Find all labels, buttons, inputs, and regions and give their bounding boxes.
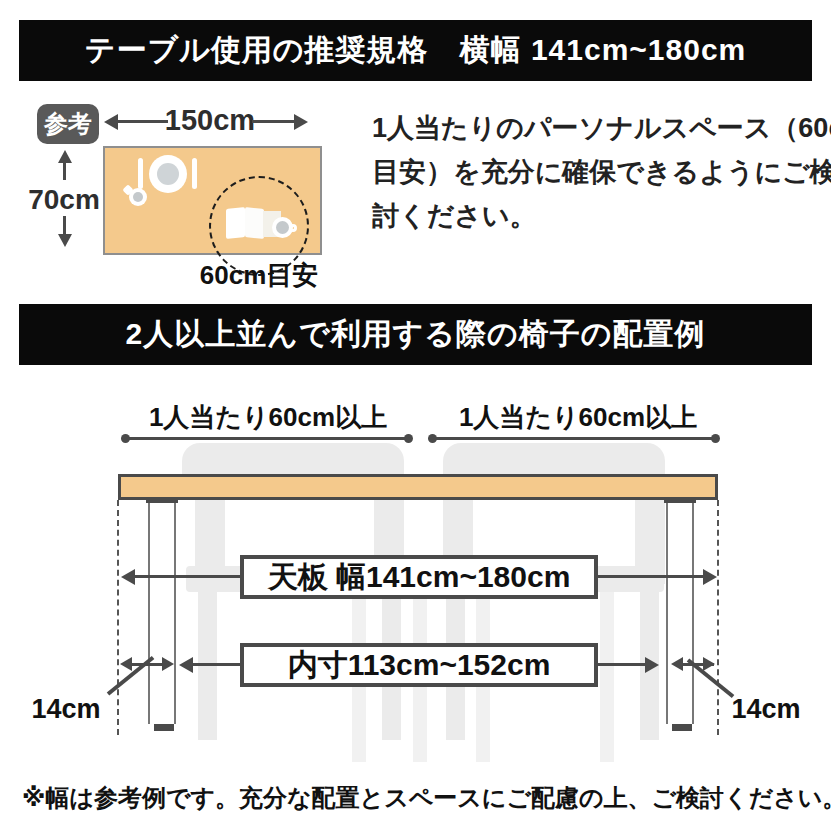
arrowhead-right-icon (645, 657, 659, 673)
arrowhead-left-icon (121, 569, 135, 585)
per-person-label-left: 1人当たり60cm以上 (120, 400, 416, 435)
edge-dashed-line-left (117, 500, 119, 735)
arrowhead-left-icon (179, 657, 193, 673)
tabletop-width-box: 天板 幅141cm~180cm (240, 555, 598, 599)
table-leg-foot (672, 724, 692, 731)
dimension-dot (428, 434, 437, 443)
dimension-line (598, 575, 704, 578)
arrowhead-down-icon (58, 234, 72, 247)
edge-dashed-line-right (717, 500, 719, 735)
note-line-1: 1人当たりのパーソナルスペース（60cm (372, 106, 822, 150)
teacup-inner (276, 221, 289, 234)
chair-leg (198, 592, 217, 740)
reference-badge-text: 参考 (44, 108, 92, 140)
banner-chair-layout-text: 2人以上並んで利用する際の椅子の配置例 (126, 314, 706, 355)
plate-inner (157, 163, 179, 185)
table-leg-cap (664, 497, 696, 503)
note-line-3: 討ください。 (372, 194, 822, 238)
tabletop-width-text: 天板 幅141cm~180cm (268, 557, 571, 598)
dimension-line (134, 575, 240, 578)
tabletop-front-view (118, 474, 718, 500)
note-line-2: 目安）を充分に確保できるようにご検 (372, 150, 822, 194)
table-depth-label: 70cm (24, 184, 104, 216)
table-width-label: 150cm (160, 104, 260, 137)
book-icon (226, 207, 245, 239)
footnote-text: ※幅は参考例です。充分な配置とスペースにご配慮の上、ご検討ください。 (22, 782, 817, 814)
banner-recommended-spec: テーブル使用の推奨規格 横幅 141cm~180cm (19, 20, 812, 81)
dimension-line (192, 663, 240, 666)
leg-offset-label-right: 14cm (724, 694, 808, 725)
knife-icon (192, 158, 197, 189)
per-person-label-right: 1人当たり60cm以上 (430, 400, 726, 435)
banner-chair-layout: 2人以上並んで利用する際の椅子の配置例 (19, 304, 812, 365)
dimension-line (125, 437, 412, 440)
infographic-canvas: テーブル使用の推奨規格 横幅 141cm~180cm 参考 150cm 70cm… (0, 0, 831, 831)
inner-width-box: 内寸113cm~152cm (240, 643, 598, 687)
arrowhead-right-icon (162, 657, 174, 671)
dimension-line (63, 162, 66, 180)
dimension-line (432, 437, 719, 440)
book-page (245, 207, 264, 239)
personal-space-label: 60cm目安 (193, 258, 325, 293)
dimension-dot (404, 434, 413, 443)
table-leg-left (148, 500, 176, 724)
arrowhead-right-icon (703, 569, 717, 585)
dimension-dot (711, 434, 720, 443)
banner-recommended-spec-text: テーブル使用の推奨規格 横幅 141cm~180cm (85, 30, 747, 71)
fork-icon (138, 158, 143, 189)
table-leg-foot (154, 724, 174, 731)
cup-inner (133, 192, 143, 202)
inner-width-text: 内寸113cm~152cm (288, 645, 551, 686)
dimension-line (63, 216, 66, 234)
table-leg-right (666, 500, 694, 724)
dimension-dot (121, 434, 130, 443)
leg-offset-label-left: 14cm (24, 694, 108, 725)
arrowhead-right-icon (703, 657, 715, 671)
chair-rear-leg (600, 592, 614, 762)
reference-badge: 参考 (37, 104, 99, 144)
table-leg-cap (146, 497, 178, 503)
arrowhead-right-icon (294, 114, 308, 130)
teacup-handle (289, 224, 297, 232)
dimension-line (598, 663, 646, 666)
